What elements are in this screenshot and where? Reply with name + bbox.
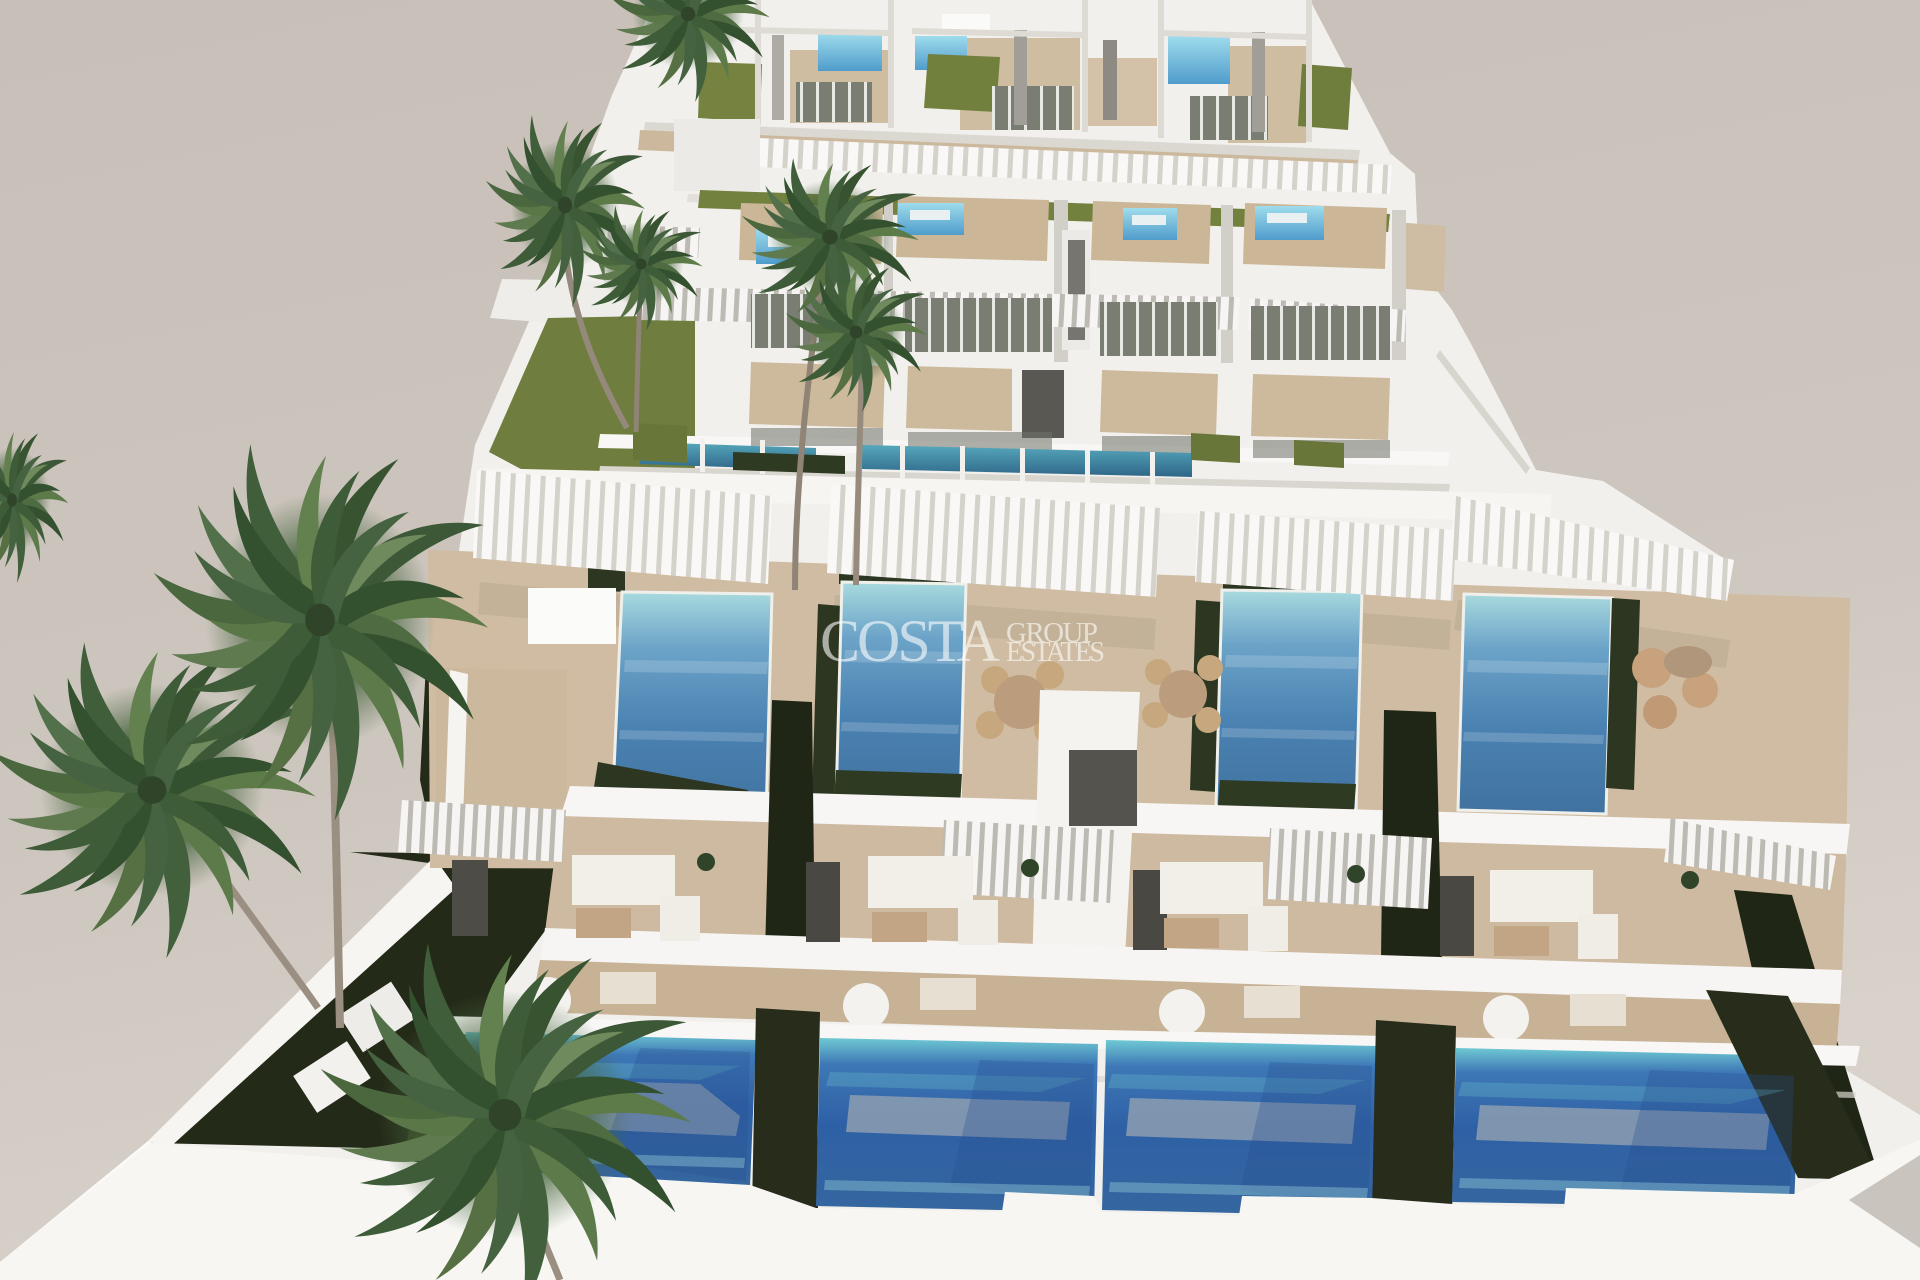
svg-text:ESTATES: ESTATES	[1006, 637, 1105, 668]
svg-text:COSTA: COSTA	[820, 608, 1000, 674]
